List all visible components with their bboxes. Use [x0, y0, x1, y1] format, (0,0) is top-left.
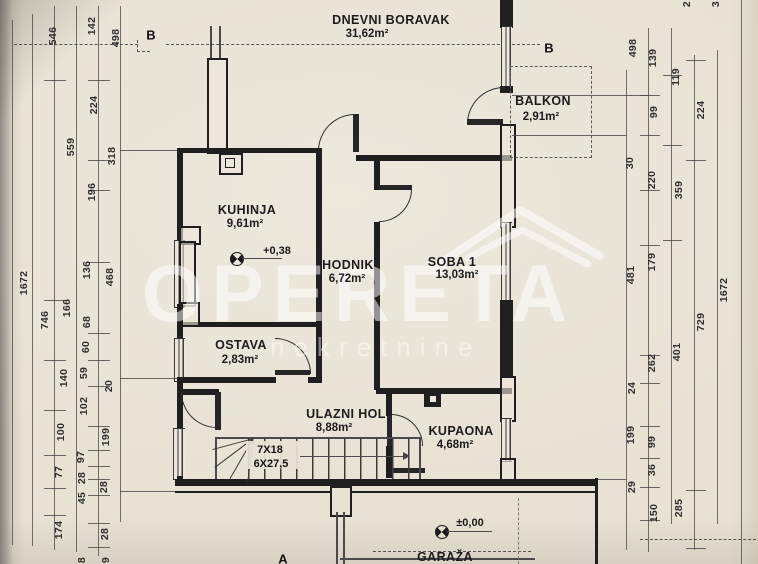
- dimension-tick: [686, 490, 706, 491]
- dimension-label: 142: [86, 17, 98, 35]
- garage-line: [343, 512, 345, 564]
- dimension-label: 220: [646, 171, 658, 189]
- dimension-tick: [663, 145, 682, 146]
- dimension-label: 199: [625, 426, 637, 444]
- dimension-label: 28: [99, 528, 111, 540]
- dimension-label: 481: [625, 266, 637, 284]
- dimension-tick: [120, 378, 177, 379]
- dimension-label: 97: [75, 451, 87, 463]
- dimension-chain-line: [626, 70, 627, 550]
- dimension-label: 2: [681, 1, 693, 7]
- window-symbol: [173, 428, 185, 480]
- dimension-label: 179: [646, 253, 658, 271]
- wall: [595, 478, 598, 564]
- dimension-tick: [88, 547, 110, 548]
- dimension-label: 359: [673, 181, 685, 199]
- dimension-tick: [120, 491, 175, 492]
- wall: [175, 479, 598, 486]
- stairs-walk-line: [300, 456, 403, 457]
- dimension-label: 262: [646, 354, 658, 372]
- dimension-tick: [88, 450, 110, 451]
- wall: [177, 377, 276, 383]
- dimension-tick: [640, 383, 660, 384]
- dimension-label: 174: [53, 521, 65, 539]
- stairs-direction-arrow: [403, 452, 410, 460]
- dimension-label: 468: [104, 268, 116, 286]
- dimension-label: 1672: [18, 271, 30, 296]
- dimension-label: 99: [646, 436, 658, 448]
- section-marker-a: A: [278, 552, 287, 564]
- dimension-tick: [44, 515, 66, 516]
- dimension-tick: [640, 458, 660, 459]
- pillar: [330, 486, 352, 517]
- dimension-tick: [44, 488, 66, 489]
- wall: [386, 390, 392, 416]
- dimension-tick: [663, 240, 682, 241]
- door-arc: [379, 189, 412, 222]
- room-area-label: 9,61m²: [227, 218, 263, 230]
- room-name-label: KUPAONA: [428, 424, 493, 438]
- dimension-tick: [640, 426, 660, 427]
- garage-dashed-line: [640, 539, 756, 540]
- room-area-label: 6,72m²: [329, 273, 365, 285]
- room-name-label: KUHINJA: [218, 203, 276, 217]
- wall: [308, 377, 321, 383]
- dimension-label: 45: [76, 492, 88, 504]
- dimension-label: 102: [78, 397, 90, 415]
- dimension-label: 401: [671, 343, 683, 361]
- dimension-tick: [88, 80, 110, 81]
- section-marker-b-left: B: [146, 28, 155, 43]
- chimney-column: [207, 58, 228, 154]
- wall: [500, 376, 516, 422]
- dimension-chain-line: [694, 55, 695, 550]
- dimension-tick: [88, 495, 110, 496]
- dimension-tick: [640, 245, 660, 246]
- room-area-label: 2,83m²: [222, 354, 258, 366]
- room-area-label: 4,68m²: [437, 439, 473, 451]
- level-underline: [242, 258, 282, 259]
- dimension-label: 285: [673, 499, 685, 517]
- dimension-chain-line: [120, 6, 121, 522]
- dimension-tick: [44, 455, 66, 456]
- watermark-subtitle: nekretnine: [270, 332, 481, 363]
- room-name-label: DNEVNI BORAVAK: [332, 13, 450, 27]
- door-arc: [181, 392, 217, 428]
- room-name-label: ULAZNI HOL: [306, 407, 386, 421]
- dimension-label: 68: [81, 316, 93, 328]
- window-symbol: [174, 338, 185, 382]
- dimension-label: 99: [648, 106, 660, 118]
- stairs-tread-label: 6X27,5: [254, 458, 289, 470]
- dimension-tick: [686, 60, 706, 61]
- garage-line: [336, 512, 338, 564]
- dimension-tick: [640, 135, 660, 136]
- dimension-label: 77: [53, 466, 65, 478]
- floor-plan-photo: B B: [0, 0, 758, 564]
- garage-dashed-line: [518, 498, 519, 564]
- dimension-tick: [44, 410, 66, 411]
- wall: [175, 491, 598, 493]
- level-underline: [447, 531, 492, 532]
- dimension-label: 3: [710, 1, 722, 7]
- dimension-label: 746: [39, 311, 51, 329]
- dimension-tick: [44, 360, 66, 361]
- dimension-label: 729: [695, 313, 707, 331]
- door-arc: [318, 114, 355, 151]
- dimension-label: 224: [695, 101, 707, 119]
- flue-box-core: [225, 158, 235, 168]
- room-area-label: 8,88m²: [316, 422, 352, 434]
- dimension-label: 318: [106, 147, 118, 165]
- dimension-label: 9: [100, 557, 112, 563]
- door-arc: [467, 87, 504, 124]
- dimension-label: 100: [55, 423, 67, 441]
- dimension-label: 1672: [718, 278, 730, 303]
- dimension-label: 24: [626, 382, 638, 394]
- room-name-label: HODNIK: [322, 258, 374, 272]
- wall: [219, 26, 221, 58]
- wall: [376, 388, 512, 394]
- dimension-label: 136: [81, 261, 93, 279]
- dimension-tick: [686, 548, 706, 549]
- dimension-label: 119: [670, 68, 682, 86]
- stairs-edge: [419, 437, 421, 479]
- level-label: ±0,00: [456, 517, 483, 529]
- dimension-label: 29: [626, 481, 638, 493]
- dimension-label: 224: [88, 96, 100, 114]
- room-area-label: 13,03m²: [436, 269, 479, 281]
- dimension-label: 28: [76, 472, 88, 484]
- vent-shaft-core: [430, 396, 436, 402]
- dimension-label: 498: [627, 39, 639, 57]
- section-line-b: [166, 44, 540, 45]
- dimension-label: 150: [648, 504, 660, 522]
- dimension-chain-line: [12, 20, 13, 545]
- dimension-label: 36: [646, 464, 658, 476]
- stairs-edge: [215, 437, 217, 479]
- dimension-chain-line: [32, 14, 33, 546]
- room-area-label: 2,91m²: [523, 111, 559, 123]
- dimension-label: 546: [47, 27, 59, 45]
- dimension-label: 8: [76, 557, 88, 563]
- dimension-label: 28: [98, 481, 110, 493]
- dimension-tick: [120, 150, 177, 151]
- dimension-tick: [88, 333, 110, 334]
- wall: [210, 26, 212, 58]
- dimension-tick: [640, 190, 660, 191]
- wall: [500, 0, 513, 28]
- dimension-tick: [598, 479, 626, 480]
- dimension-chain-line: [671, 28, 672, 524]
- dimension-label: 559: [65, 138, 77, 156]
- room-name-label: GARAŽA: [417, 550, 473, 564]
- dimension-label: 196: [86, 183, 98, 201]
- dimension-label: 59: [78, 367, 90, 379]
- dimension-label: 60: [80, 341, 92, 353]
- dimension-label: 166: [61, 299, 73, 317]
- dimension-tick: [512, 135, 626, 136]
- room-name-label: BALKON: [515, 94, 571, 108]
- dimension-tick: [640, 487, 660, 488]
- section-marker-b-right: B: [544, 41, 553, 56]
- dimension-tick: [88, 523, 110, 524]
- dimension-label: 498: [110, 29, 122, 47]
- dimension-label: 30: [624, 157, 636, 169]
- dimension-chain-line: [98, 6, 99, 556]
- dimension-chain-line: [76, 6, 77, 552]
- wall: [177, 148, 319, 153]
- dimension-label: 199: [100, 428, 112, 446]
- dimension-label: 139: [647, 49, 659, 67]
- dimension-tick: [44, 80, 66, 81]
- room-area-label: 31,62m²: [346, 28, 389, 40]
- room-name-label: OSTAVA: [215, 338, 267, 352]
- dimension-tick: [88, 466, 110, 467]
- dimension-chain-line: [741, 0, 742, 564]
- dimension-tick: [686, 160, 706, 161]
- window-symbol: [501, 418, 512, 462]
- dimension-tick: [88, 360, 110, 361]
- stairs-riser-label: 7X18: [257, 444, 283, 456]
- level-label: +0,38: [263, 245, 291, 257]
- dimension-label: 20: [103, 380, 115, 392]
- room-name-label: SOBA 1: [428, 255, 476, 269]
- dimension-label: 140: [58, 369, 70, 387]
